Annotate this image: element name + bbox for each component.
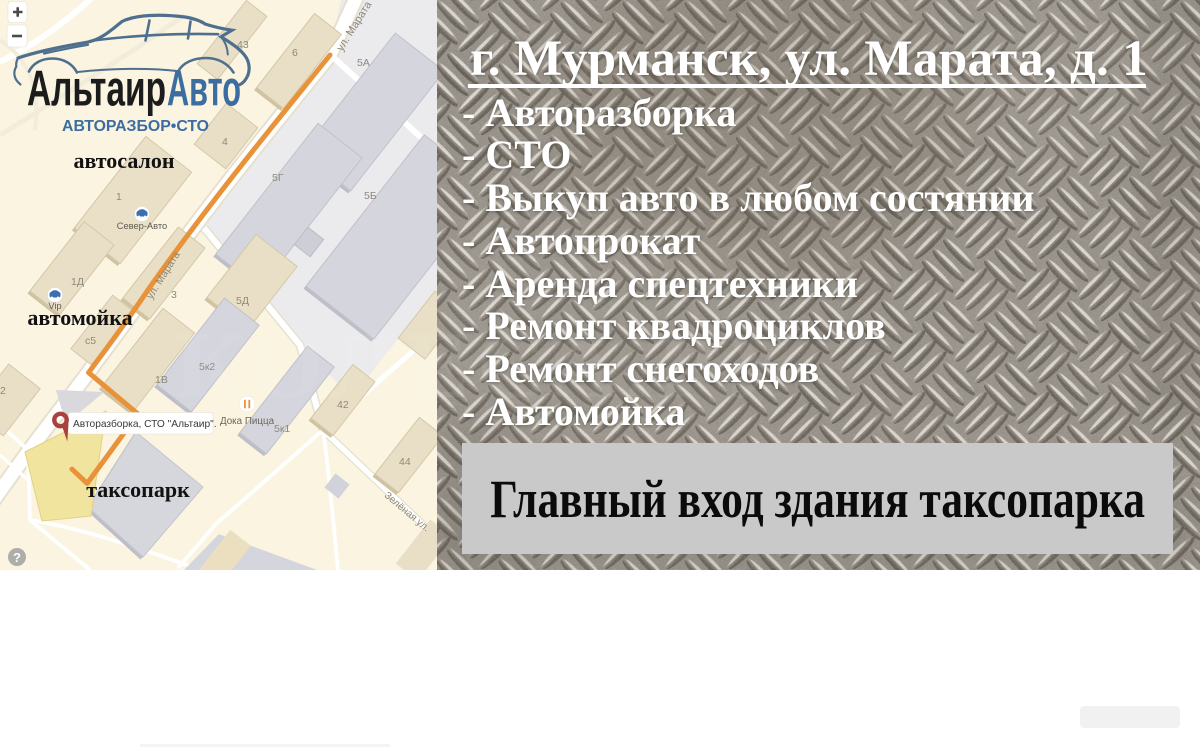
- svg-text:3: 3: [171, 289, 177, 301]
- svg-text:2: 2: [0, 385, 6, 397]
- svg-text:автосалон: автосалон: [73, 148, 174, 173]
- svg-text:?: ?: [13, 550, 21, 565]
- svg-text:6: 6: [292, 47, 298, 59]
- svg-text:1В: 1В: [155, 374, 168, 386]
- svg-text:44: 44: [399, 456, 411, 468]
- svg-text:Альтаир: Альтаир: [27, 61, 166, 117]
- svg-text:с5: с5: [85, 335, 96, 347]
- svg-text:4: 4: [222, 136, 228, 148]
- svg-text:Авто: Авто: [167, 61, 241, 117]
- svg-text:5А: 5А: [357, 57, 370, 69]
- svg-text:автомойка: автомойка: [27, 305, 132, 330]
- svg-text:5Г: 5Г: [272, 172, 284, 184]
- svg-text:1Д: 1Д: [71, 276, 84, 288]
- svg-text:Север-Авто: Север-Авто: [117, 221, 167, 231]
- svg-text:5Б: 5Б: [364, 190, 377, 202]
- svg-text:таксопарк: таксопарк: [86, 477, 190, 502]
- svg-text:5к1: 5к1: [274, 423, 290, 435]
- svg-text:АВТОРАЗБОР•СТО: АВТОРАЗБОР•СТО: [62, 118, 209, 135]
- svg-text:5Д: 5Д: [236, 295, 249, 307]
- svg-text:1: 1: [116, 191, 122, 203]
